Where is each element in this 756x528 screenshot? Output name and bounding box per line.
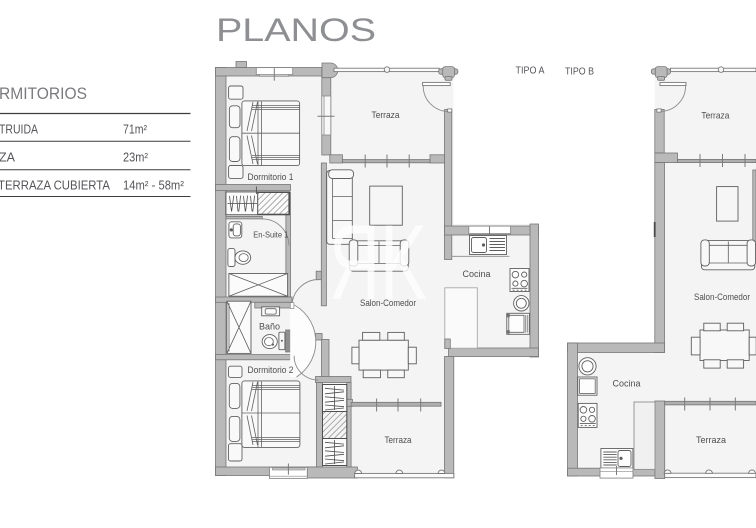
svg-text:71m²: 71m² <box>123 122 148 137</box>
svg-text:ZA: ZA <box>0 150 15 165</box>
svg-text:TERRAZA CUBIERTA: TERRAZA CUBIERTA <box>0 178 110 193</box>
svg-text:TRUIDA: TRUIDA <box>0 122 38 137</box>
svg-text:Terraza: Terraza <box>372 110 400 120</box>
svg-text:Dormitorio 1: Dormitorio 1 <box>248 172 294 183</box>
svg-text:Cocina: Cocina <box>613 378 641 388</box>
svg-text:Terraza: Terraza <box>701 111 729 121</box>
svg-text:TIPO A: TIPO A <box>516 66 545 77</box>
svg-text:23m²: 23m² <box>123 150 149 165</box>
svg-text:14m² - 58m²: 14m² - 58m² <box>123 178 185 193</box>
svg-text:RMITORIOS: RMITORIOS <box>0 84 87 103</box>
svg-text:PLANOS: PLANOS <box>216 12 376 48</box>
svg-text:ЯK: ЯK <box>329 203 427 322</box>
svg-text:Cocina: Cocina <box>463 269 491 279</box>
svg-text:Salon-Comedor: Salon-Comedor <box>694 292 751 303</box>
svg-text:Dormitorio 2: Dormitorio 2 <box>248 365 294 376</box>
svg-text:Baño: Baño <box>259 322 280 332</box>
svg-text:TIPO B: TIPO B <box>565 67 594 78</box>
svg-text:Terraza: Terraza <box>385 435 412 445</box>
svg-text:Terraza: Terraza <box>696 435 726 445</box>
svg-text:En-Suite 1: En-Suite 1 <box>253 230 288 240</box>
